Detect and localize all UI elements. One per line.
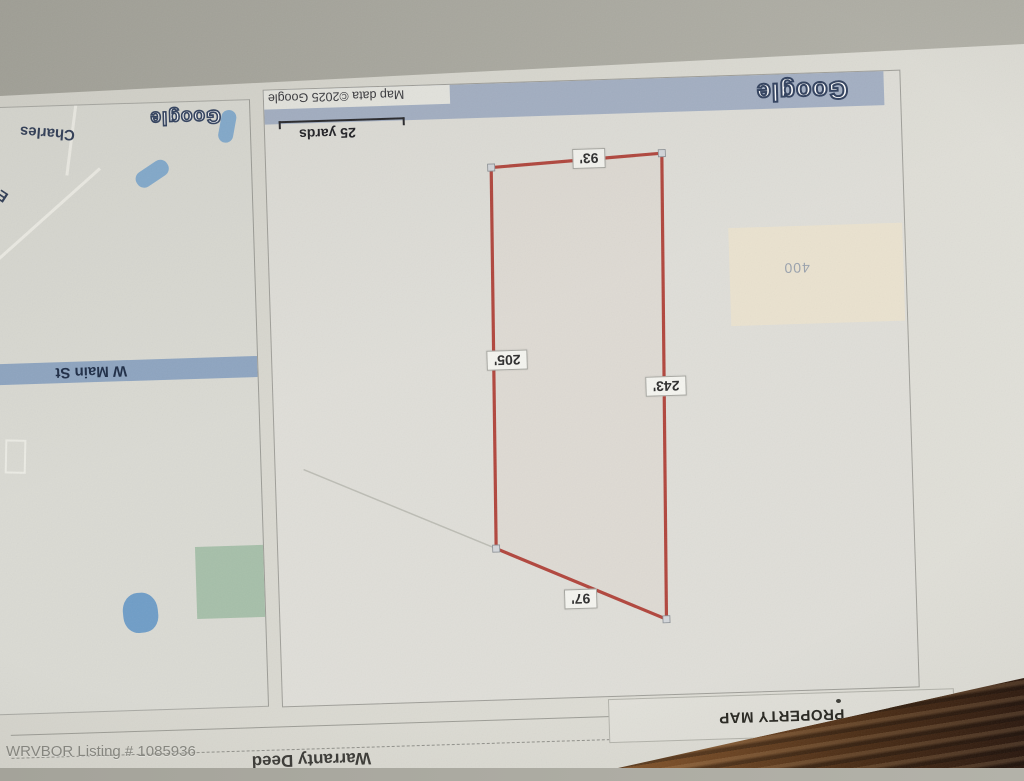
vertex-marker: [658, 150, 665, 157]
water-feature: [121, 591, 160, 634]
dust-speck: [836, 699, 841, 703]
building-outline: [5, 439, 27, 473]
locator-map-panel: Google Charles El W Main St: [0, 99, 269, 716]
lot-dimensions-note: *Lot Dimensions are Estimated: [689, 30, 889, 51]
dimension-label-right: 243': [645, 376, 686, 397]
main-street-road: [0, 356, 258, 386]
paper-sheet: *Lot Dimensions are Estimated Google Map…: [0, 0, 1024, 768]
vertex-marker: [663, 616, 670, 623]
road-line: [0, 167, 101, 289]
park-area: [195, 545, 269, 619]
property-map-panel: Google Map data ©2025 Google 25 yards 40…: [263, 70, 920, 708]
street-label-main: W Main St: [55, 362, 127, 381]
dimension-label-left: 205': [487, 350, 528, 371]
faint-road-line: [304, 464, 497, 555]
vertex-marker: [488, 164, 495, 171]
paper-content: *Lot Dimensions are Estimated Google Map…: [0, 0, 1024, 780]
photo-of-property-map-page: { "photo_overlay": { "watermark": "WRVBO…: [0, 0, 1024, 768]
dimension-label-bottom: 97': [564, 588, 598, 609]
listing-watermark: WRVBOR Listing # 1085936: [6, 743, 196, 760]
vertex-marker: [493, 545, 500, 552]
street-label-charles: Charles: [19, 122, 75, 143]
street-label-el: El: [0, 183, 11, 205]
highlighter-mark: [133, 157, 172, 191]
dimension-label-top: 93': [572, 148, 606, 169]
google-logo: Google: [149, 104, 221, 128]
